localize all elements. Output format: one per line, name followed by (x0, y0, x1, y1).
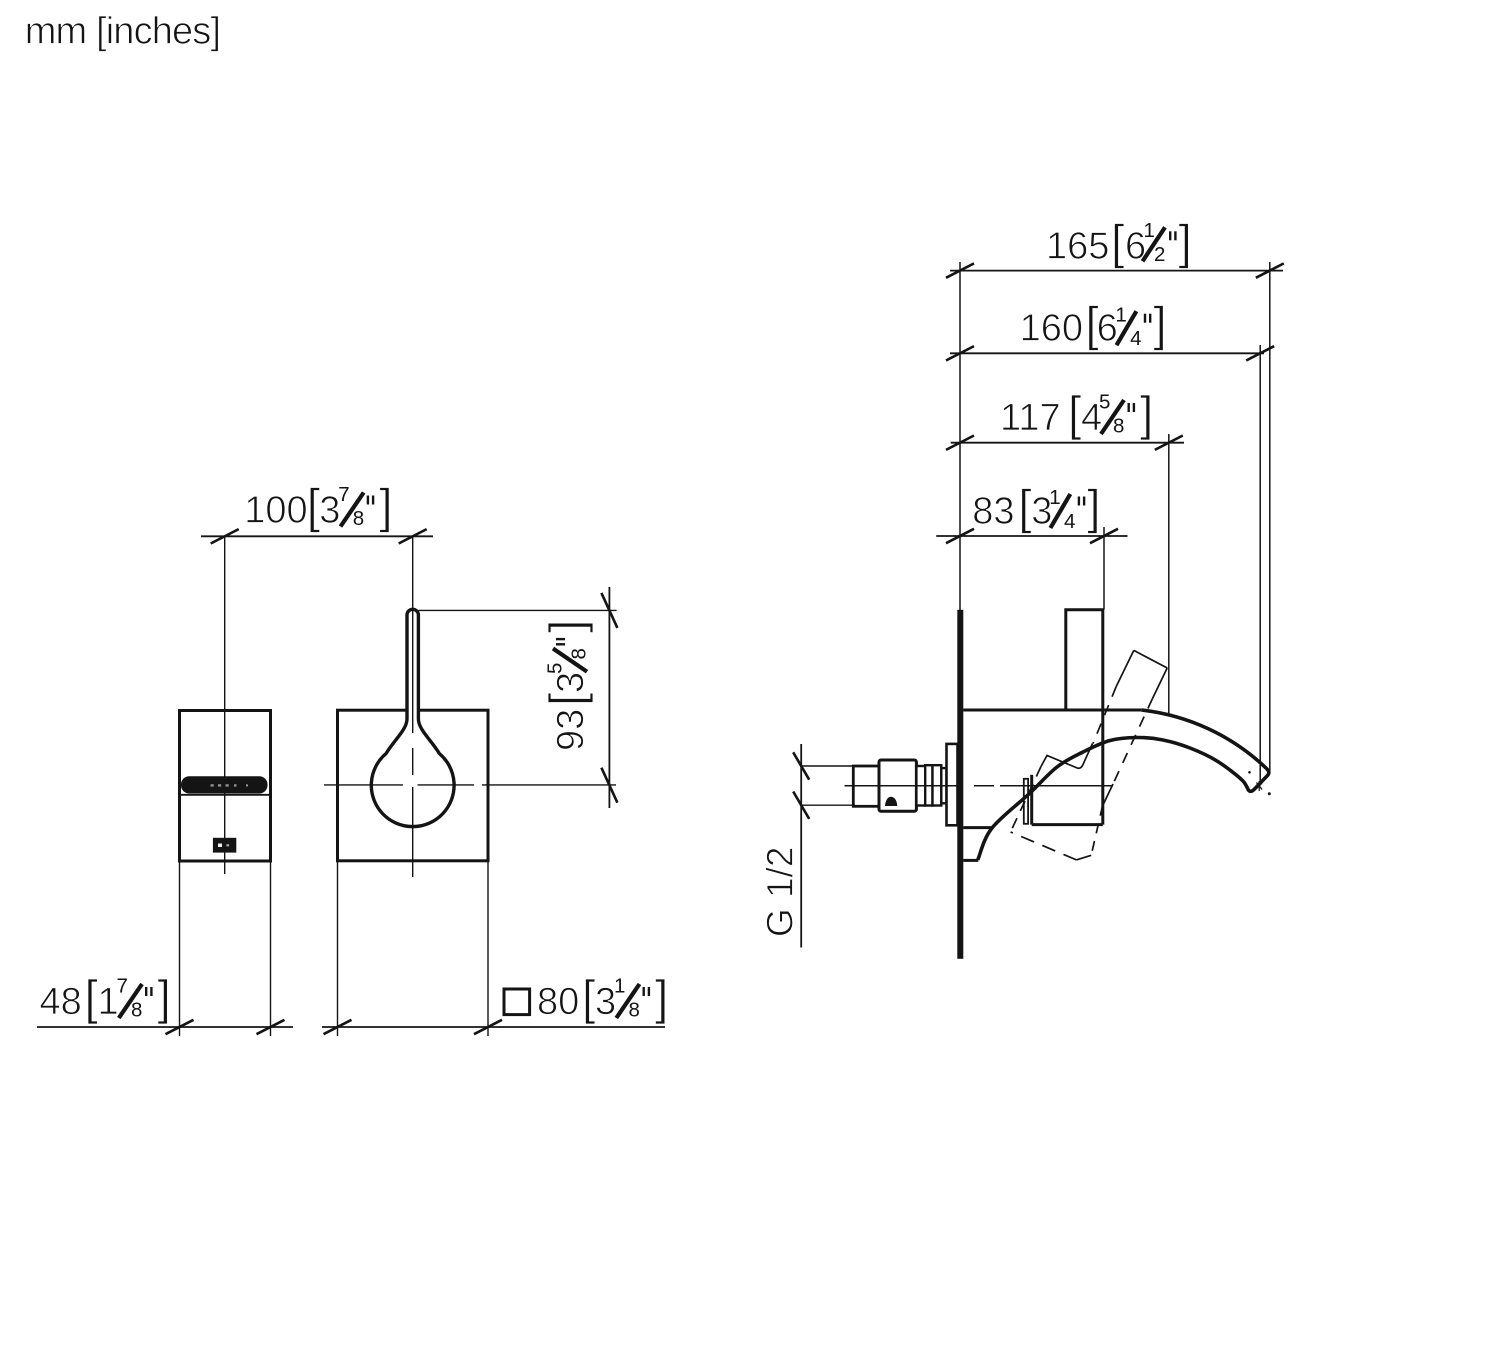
svg-text:4: 4 (1064, 510, 1075, 533)
svg-text:1: 1 (614, 975, 625, 998)
svg-text:48: 48 (40, 981, 82, 1023)
svg-text:8: 8 (353, 507, 364, 530)
svg-text:8: 8 (1113, 415, 1124, 438)
svg-text:[: [ (307, 481, 320, 534)
svg-text:8: 8 (131, 999, 142, 1022)
svg-text:8: 8 (629, 999, 640, 1022)
svg-text:1: 1 (1144, 219, 1155, 242)
svg-text:[: [ (1018, 482, 1031, 535)
svg-text:1: 1 (1049, 486, 1060, 509)
svg-text:[: [ (541, 693, 594, 706)
svg-text:]: ] (1153, 299, 1166, 352)
svg-text:mm [inches]: mm [inches] (25, 11, 220, 53)
svg-text:]: ] (379, 481, 392, 534)
svg-text:[: [ (85, 972, 98, 1025)
svg-text:8: 8 (568, 648, 591, 659)
svg-text:]: ] (655, 972, 668, 1025)
svg-text:[: [ (1111, 216, 1124, 269)
svg-text:5: 5 (1099, 391, 1110, 414)
svg-text:160: 160 (1020, 308, 1083, 350)
svg-text:3: 3 (595, 981, 616, 1023)
svg-text:[: [ (1068, 388, 1081, 441)
svg-text:2: 2 (1154, 243, 1165, 266)
svg-text:3: 3 (319, 490, 340, 532)
svg-text:1: 1 (1115, 303, 1126, 326)
svg-text:]: ] (158, 972, 171, 1025)
svg-text:4: 4 (1130, 327, 1141, 350)
svg-text:1: 1 (98, 981, 119, 1023)
svg-text:]: ] (1087, 482, 1100, 535)
svg-text:165: 165 (1046, 225, 1109, 267)
svg-text:7: 7 (338, 483, 349, 506)
svg-text:]: ] (1179, 216, 1192, 269)
svg-text:G 1/2: G 1/2 (759, 847, 800, 938)
svg-text:100: 100 (244, 490, 307, 532)
svg-text:93: 93 (550, 709, 592, 751)
svg-text:3: 3 (550, 672, 592, 693)
svg-text:7: 7 (117, 975, 128, 998)
svg-text:117: 117 (1000, 397, 1061, 439)
svg-text:83: 83 (972, 491, 1014, 533)
svg-text:]: ] (541, 620, 594, 633)
svg-text:[: [ (582, 972, 595, 1025)
svg-text:]: ] (1140, 388, 1153, 441)
svg-text:5: 5 (544, 663, 567, 674)
svg-text:80: 80 (537, 981, 579, 1023)
